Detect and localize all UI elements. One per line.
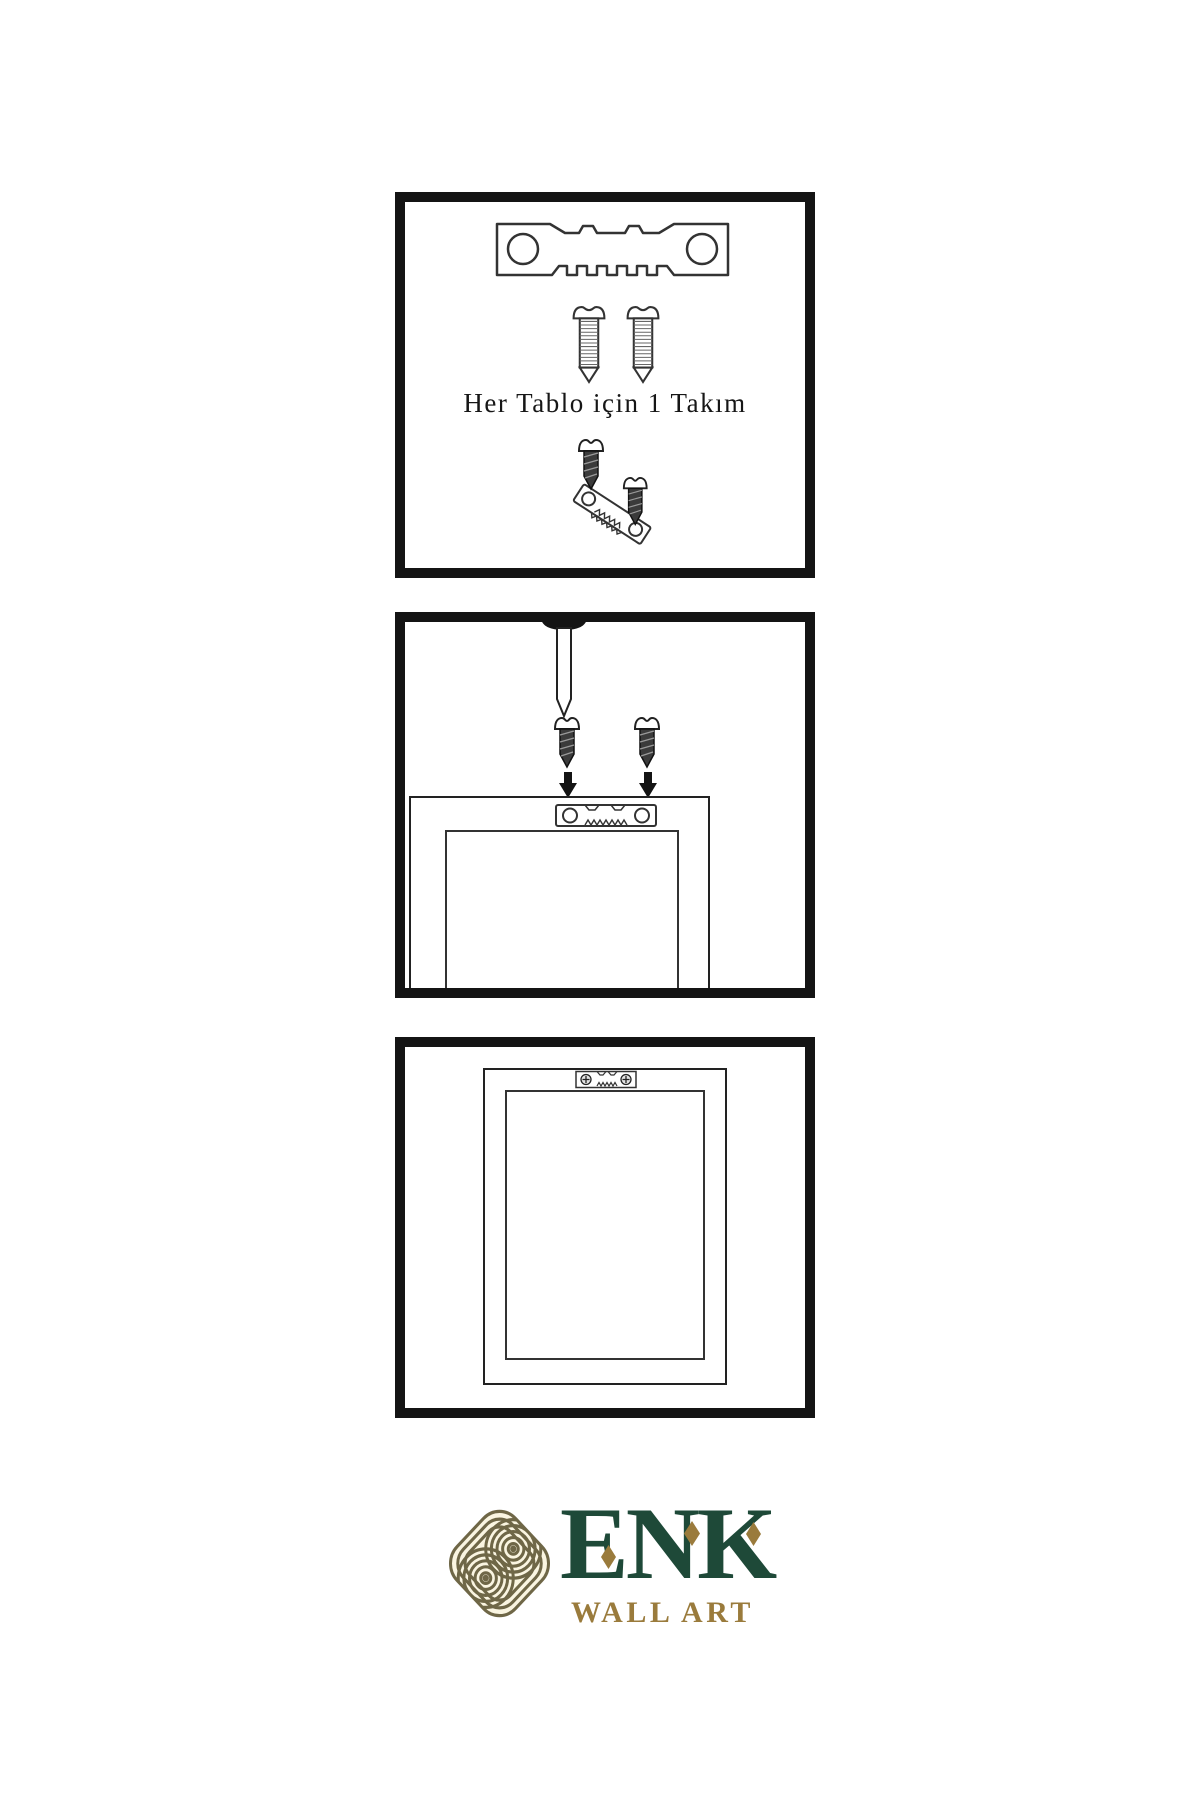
frame-back-inner-outline	[445, 830, 679, 998]
dark-screw-icon	[552, 716, 582, 770]
sawtooth-hanger-on-frame-icon	[555, 802, 657, 828]
hanger-mounting-assembly-icon	[543, 432, 661, 556]
mounted-hanger-with-screws-icon	[575, 1069, 637, 1089]
down-arrow-icon	[559, 772, 577, 798]
screw-icon	[625, 304, 661, 384]
wall-nail-icon	[540, 617, 588, 719]
step-2-panel	[395, 612, 815, 998]
down-arrow-icon	[639, 772, 657, 798]
interlocking-knot-icon	[437, 1497, 562, 1630]
instruction-sheet: Her Tablo için 1 Takım	[0, 0, 1200, 1800]
dark-screw-icon	[632, 716, 662, 770]
screw-icon	[571, 304, 607, 384]
brand-name: ENK	[560, 1494, 800, 1594]
step-1-caption: Her Tablo için 1 Takım	[405, 388, 805, 419]
sawtooth-hanger-icon	[495, 222, 730, 277]
step-1-panel: Her Tablo için 1 Takım	[395, 192, 815, 578]
step-3-panel	[395, 1037, 815, 1418]
hung-frame-inner-outline	[505, 1090, 705, 1360]
brand-tagline: WALL ART	[571, 1596, 811, 1630]
